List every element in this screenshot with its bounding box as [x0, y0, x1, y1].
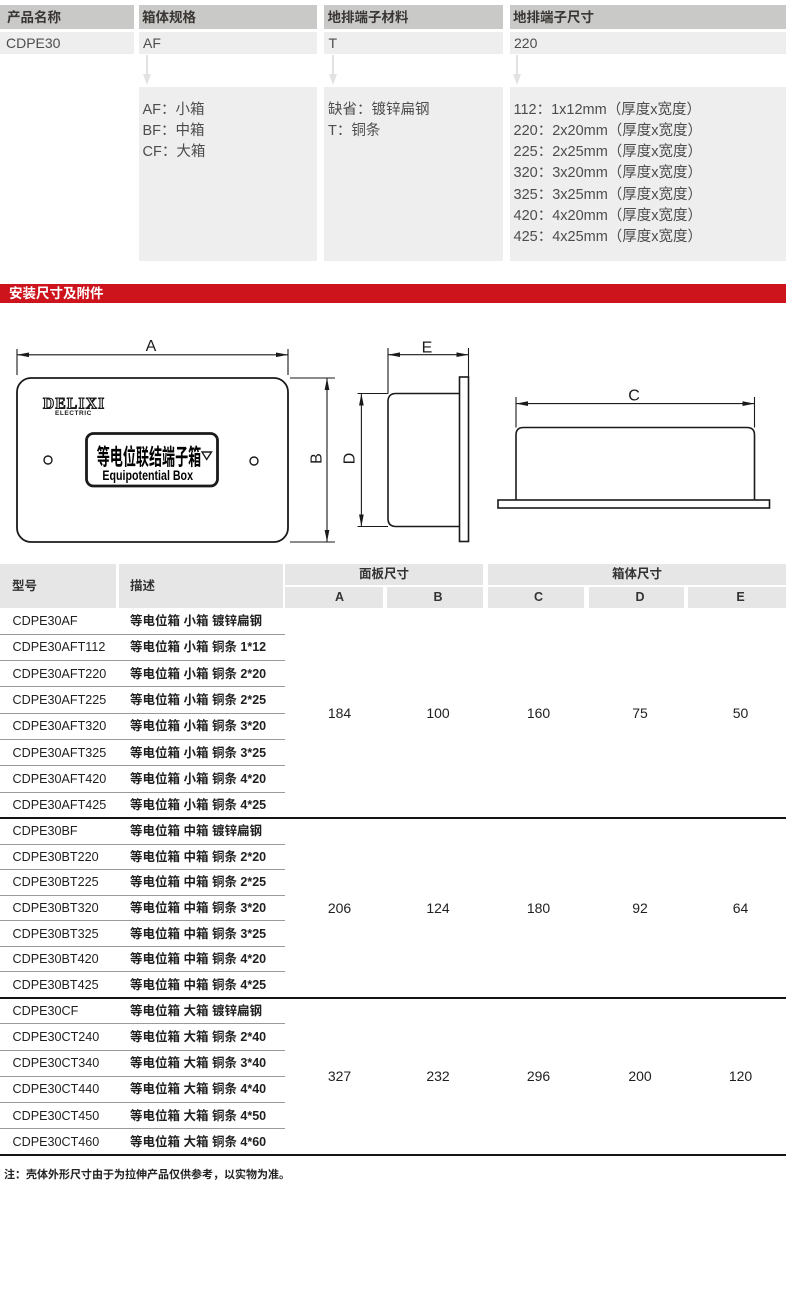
- svg-text:ELECTRIC: ELECTRIC: [55, 410, 92, 417]
- svg-text:C: C: [628, 387, 640, 404]
- svg-text:B: B: [309, 453, 326, 464]
- svg-text:E: E: [422, 339, 433, 356]
- svg-text:A: A: [146, 338, 157, 355]
- svg-text:Equipotential Box: Equipotential Box: [102, 468, 193, 484]
- svg-text:D: D: [342, 453, 359, 465]
